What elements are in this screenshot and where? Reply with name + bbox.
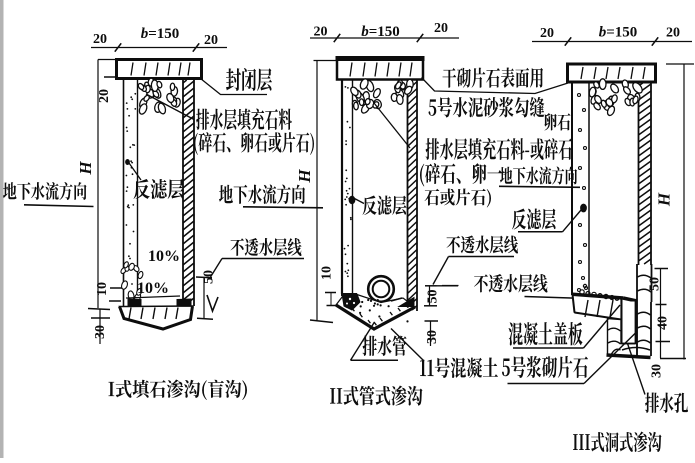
svg-text:50: 50 <box>426 290 441 304</box>
svg-text:50: 50 <box>648 277 663 291</box>
svg-text:40: 40 <box>656 316 671 330</box>
svg-text:30: 30 <box>650 364 665 378</box>
svg-text:b=150: b=150 <box>141 26 180 42</box>
svg-text:10%: 10% <box>148 248 180 265</box>
svg-text:20: 20 <box>666 26 680 41</box>
svg-text:30: 30 <box>425 330 440 344</box>
svg-text:20: 20 <box>93 32 107 47</box>
svg-text:H: H <box>655 192 674 207</box>
svg-text:10: 10 <box>95 282 110 296</box>
svg-text:20: 20 <box>434 21 448 36</box>
svg-text:20: 20 <box>314 25 328 40</box>
svg-text:b=150: b=150 <box>361 24 400 40</box>
svg-text:10: 10 <box>320 266 335 280</box>
svg-text:30: 30 <box>93 325 108 339</box>
svg-text:10%: 10% <box>137 280 169 297</box>
svg-text:20: 20 <box>204 33 218 48</box>
svg-text:H: H <box>76 161 95 176</box>
svg-text:20: 20 <box>540 26 554 41</box>
svg-text:H: H <box>295 169 314 184</box>
svg-text:20: 20 <box>97 89 112 103</box>
svg-text:b=150: b=150 <box>599 25 638 41</box>
